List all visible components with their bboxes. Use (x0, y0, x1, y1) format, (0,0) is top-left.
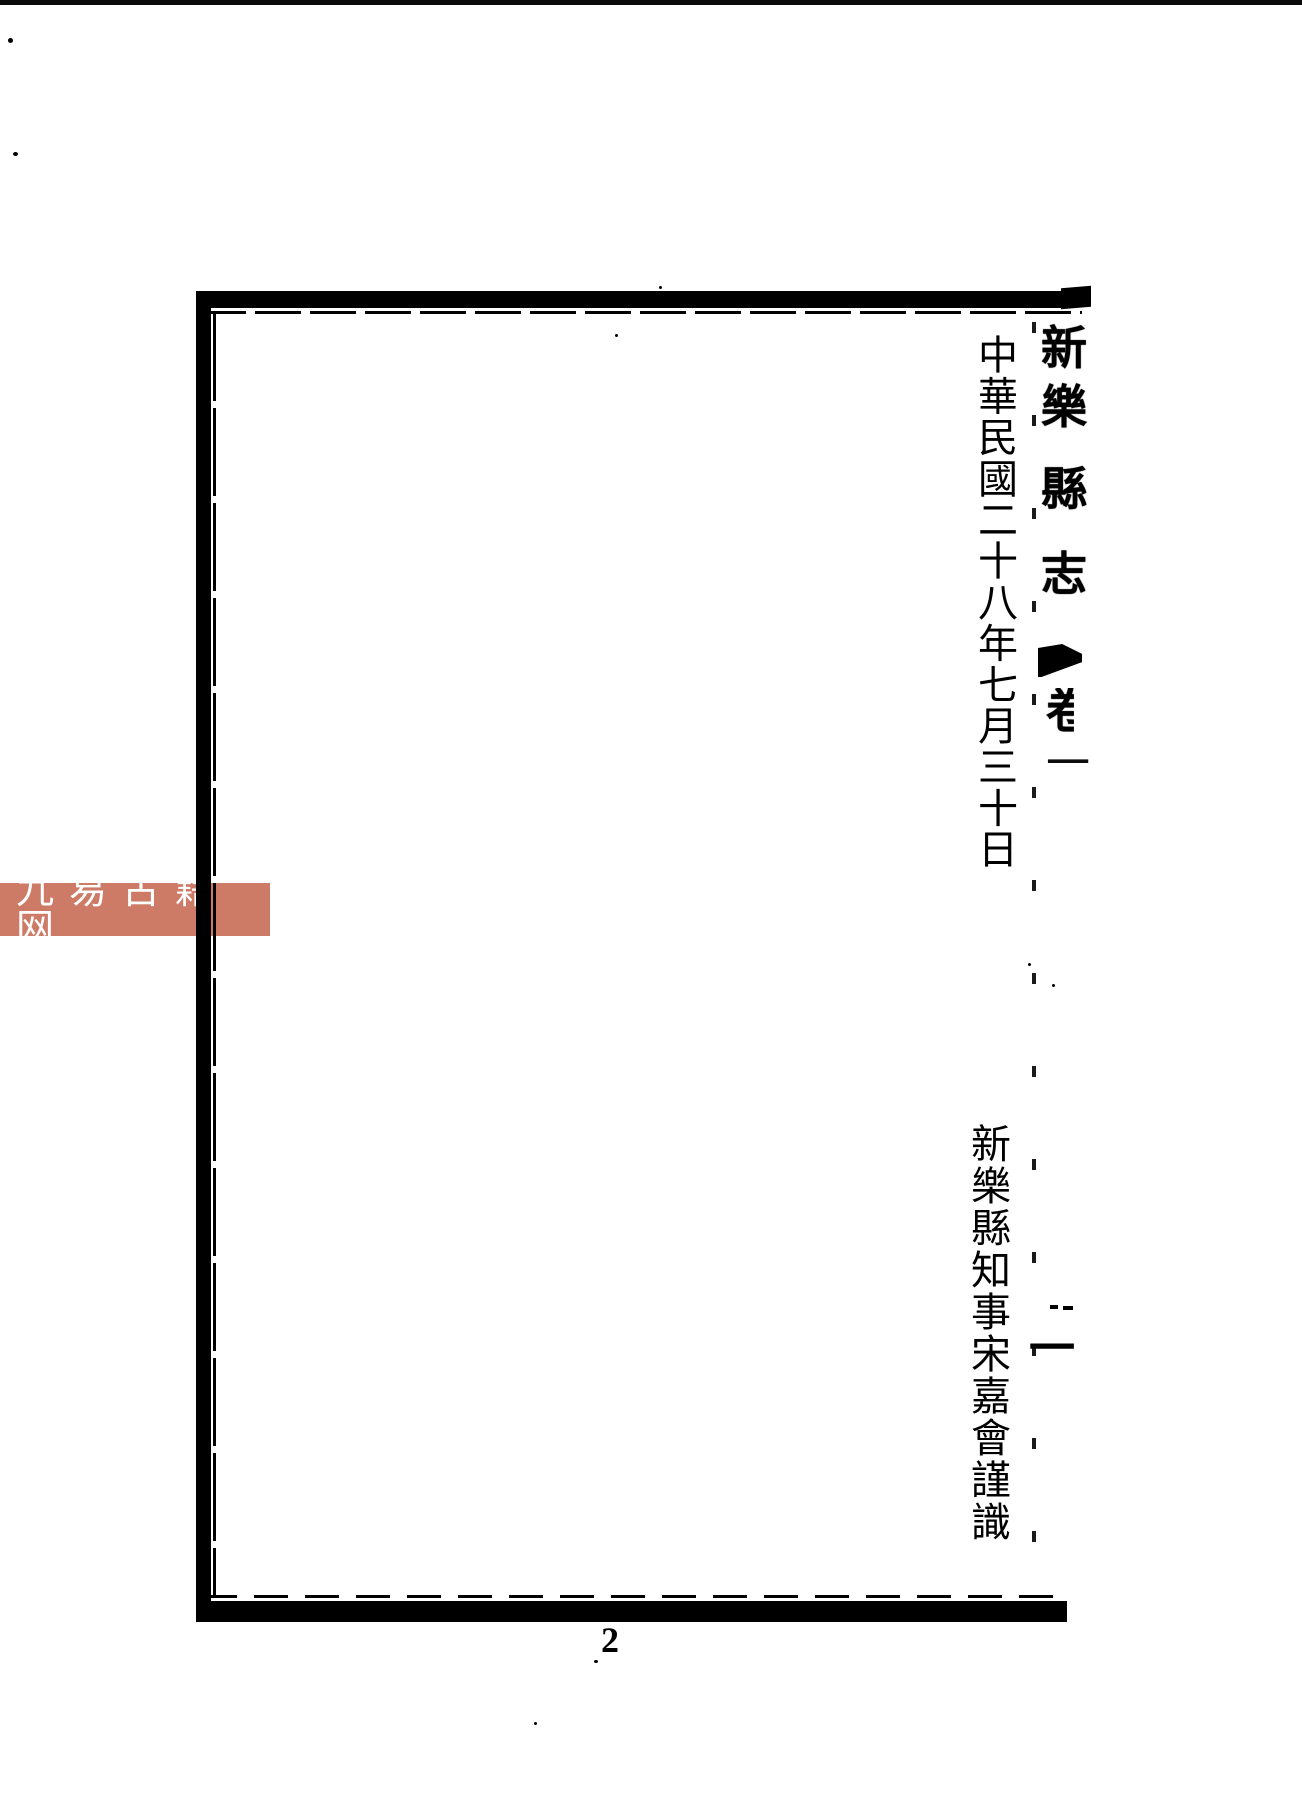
frame-bottom-inner-line (203, 1595, 1061, 1598)
frame-bottom-border (196, 1601, 1067, 1622)
fold-title-char: 縣 (1040, 467, 1088, 513)
print-speck (1028, 963, 1031, 966)
frame-top-border-end (1061, 286, 1091, 310)
watermark-text: 九易古籍网 (16, 872, 270, 948)
date-column: 中華民國二十八年七月三十日 (970, 334, 1018, 894)
print-speck (13, 152, 18, 156)
fold-title-char: 樂 (1040, 385, 1088, 431)
print-speck (615, 334, 618, 337)
frame-left-border (196, 291, 211, 1622)
frame-right-border-faded (1032, 322, 1036, 1600)
print-speck (8, 38, 13, 43)
frame-top-border (197, 291, 1063, 308)
scan-edge-artifact (0, 0, 1302, 5)
volume-label-char: 卷 (1046, 688, 1094, 736)
volume-number-char: 一 (1046, 742, 1090, 786)
fish-tail-fold-marker-icon (1038, 644, 1082, 677)
print-speck (659, 286, 662, 289)
print-speck (594, 1660, 598, 1663)
print-speck (534, 1722, 537, 1725)
folio-dash-mark (1050, 1305, 1058, 1309)
frame-left-inner-line (213, 313, 216, 1598)
watermark-band: 九易古籍网 (0, 883, 270, 936)
fold-title-char: 新 (1040, 326, 1088, 372)
signature-column: 新樂縣知事宋嘉會謹識 (963, 1123, 1011, 1563)
folio-number-char: 一 (1028, 1326, 1076, 1372)
frame-top-inner-line (200, 311, 1082, 314)
scanned-book-page: 新 樂 縣 志 卷 一 一 中華民國二十八年七月三十日 新樂縣知事宋嘉會謹識 2… (0, 0, 1302, 1820)
fold-title-char: 志 (1040, 552, 1088, 598)
page-number: 2 (588, 1622, 632, 1658)
print-speck (1052, 984, 1055, 987)
folio-dash-mark (1063, 1306, 1073, 1310)
